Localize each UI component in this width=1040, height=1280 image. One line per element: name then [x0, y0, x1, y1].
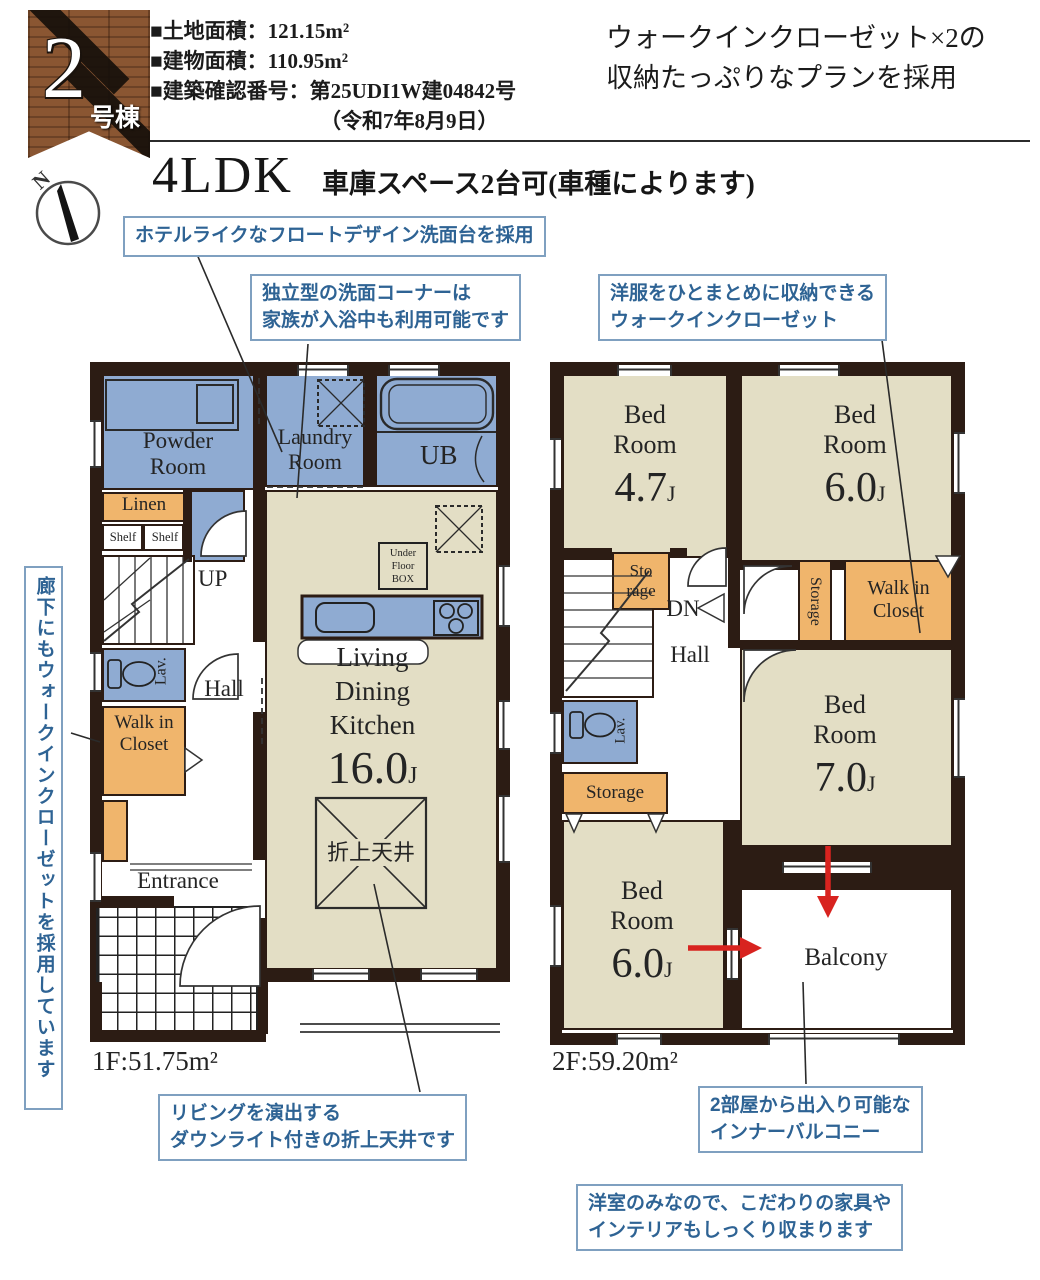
label-entrance: Entrance: [118, 868, 238, 894]
callout-western-rooms-line2: インテリアもしっくり収まります: [588, 1218, 891, 1245]
room-lav-1f: [102, 648, 186, 702]
callout-wic-2f: 洋服をひとまとめに収納できる ウォークインクローゼット: [598, 274, 887, 341]
label-lav-2f: Lav.: [612, 718, 629, 744]
callout-powder-text: ホテルライクなフロートデザイン洗面台を採用: [135, 223, 534, 250]
wall-segment: [258, 982, 268, 1034]
wall-segment: [725, 820, 740, 1030]
floor2-area-label: 2F:59.20m²: [552, 1046, 678, 1077]
wall-segment: [740, 560, 798, 570]
callout-balcony-line1: 2部屋から出入り可能な: [710, 1093, 911, 1120]
spec-confirmation-number: ■建築確認番号：第25UDI1W建04842号: [150, 76, 516, 106]
label-dn: DN: [658, 596, 708, 622]
compass-n-label: N: [28, 166, 56, 195]
wall-segment: [183, 490, 192, 562]
window: [727, 928, 738, 980]
wall-segment: [253, 490, 265, 642]
building-number-badge: 2 号棟: [28, 10, 150, 158]
wall-segment: [90, 1030, 266, 1042]
window: [90, 420, 101, 468]
label-hall-1f: Hall: [196, 676, 252, 702]
wall-segment: [253, 918, 265, 970]
wall-segment: [255, 362, 265, 490]
label-powder-room: Powder Room: [112, 428, 244, 481]
callout-hallway-wic: 廊下にもウォークインクローゼットを採用しています: [24, 566, 63, 1110]
wall-segment: [670, 548, 687, 558]
under-floor-box: Under Floor BOX: [378, 542, 428, 590]
label-wic-1f: Walk in Closet: [104, 712, 184, 756]
label-wic-2f: Walk in Closet: [846, 560, 951, 640]
label-coffered-ceiling: 折上天井: [316, 840, 426, 865]
badge-suffix: 号棟: [90, 98, 140, 134]
window: [550, 438, 561, 490]
window: [778, 365, 840, 376]
badge-number: 2: [42, 18, 86, 119]
window: [388, 365, 440, 376]
callout-wic-2f-line1: 洋服をひとまとめに収納できる: [610, 281, 875, 308]
header-divider: [150, 140, 1030, 142]
callout-balcony: 2部屋から出入り可能な インナーバルコニー: [698, 1086, 923, 1153]
window: [782, 862, 872, 873]
floor1-area-label: 1F:51.75m²: [92, 1046, 218, 1077]
window: [297, 365, 349, 376]
callout-laundry-line2: 家族が入浴中も利用可能です: [262, 308, 509, 335]
window: [499, 795, 510, 863]
spec-land-area: ■土地面積：121.15m²: [150, 16, 516, 46]
label-shelf-right: Shelf: [146, 530, 184, 544]
wall-segment: [728, 362, 740, 648]
label-bed2: Bed Room 6.0J: [770, 400, 940, 512]
window: [420, 969, 478, 980]
callout-western-rooms: 洋室のみなので、こだわりの家具や インテリアもしっくり収まります: [576, 1184, 903, 1251]
spec-confirmation-date: （令和7年8月9日）: [150, 106, 516, 136]
stairs-1f-area: [102, 555, 195, 645]
flyer-page: { "header": { "badge_number": "2", "badg…: [0, 0, 1040, 1280]
wall-segment: [253, 712, 265, 860]
spec-building-area: ■建物面積：110.95m²: [150, 46, 516, 76]
callout-wic-2f-line2: ウォークインクローゼット: [610, 308, 875, 335]
plan-note: 車庫スペース2台可(車種によります): [322, 162, 755, 201]
shoe-shelf: [102, 800, 128, 862]
headline-line2: 収納たっぷりなプランを採用: [606, 58, 986, 98]
callout-western-rooms-line1: 洋室のみなので、こだわりの家具や: [588, 1191, 891, 1218]
window: [954, 698, 965, 778]
window: [499, 700, 510, 750]
label-bed1: Bed Room 4.7J: [572, 400, 718, 512]
wall-segment: [832, 560, 844, 570]
window: [90, 652, 101, 692]
label-shelf-left: Shelf: [104, 530, 142, 544]
headline-line1: ウォークインクローゼット×2の: [606, 18, 986, 58]
callout-ceiling-line2: ダウンライト付きの折上天井です: [170, 1128, 455, 1155]
callout-ceiling: リビングを演出する ダウンライト付きの折上天井です: [158, 1094, 467, 1161]
label-ldk-size: 16.0J: [300, 742, 445, 795]
wall-segment: [365, 362, 375, 487]
wall-segment: [562, 548, 612, 558]
callout-laundry-line1: 独立型の洗面コーナーは: [262, 281, 509, 308]
callout-powder: ホテルライクなフロートデザイン洗面台を採用: [123, 216, 546, 257]
label-hall-2f: Hall: [662, 642, 718, 668]
window: [312, 969, 370, 980]
label-balcony: Balcony: [780, 944, 912, 973]
label-up: UP: [198, 566, 227, 592]
window: [617, 365, 672, 376]
window: [550, 712, 561, 754]
window: [616, 1034, 662, 1045]
wall-segment: [90, 896, 174, 908]
callout-balcony-line2: インナーバルコニー: [710, 1120, 911, 1147]
label-ub: UB: [420, 440, 458, 471]
label-ldk: Living Dining Kitchen: [300, 640, 445, 742]
callout-hallway-wic-text: 廊下にもウォークインクローゼットを採用しています: [30, 576, 57, 1100]
window: [499, 565, 510, 627]
label-bed3: Bed Room 7.0J: [760, 690, 930, 802]
plan-type: 4LDK: [152, 146, 293, 205]
window: [768, 1034, 900, 1045]
room-powder-corridor: [190, 490, 245, 562]
window: [954, 432, 965, 494]
window: [90, 852, 101, 902]
porch-tile: [96, 906, 258, 1034]
label-linen: Linen: [104, 494, 184, 516]
callout-laundry: 独立型の洗面コーナーは 家族が入浴中も利用可能です: [250, 274, 521, 341]
label-laundry-room: Laundry Room: [267, 424, 363, 475]
label-storage-lower: Storage: [562, 772, 668, 814]
callout-ceiling-line1: リビングを演出する: [170, 1101, 455, 1128]
label-lav-1f: Lav.: [153, 657, 171, 685]
label-storage-vertical: Storage: [798, 560, 832, 642]
window: [550, 905, 561, 967]
label-bed4: Bed Room 6.0J: [562, 876, 722, 988]
